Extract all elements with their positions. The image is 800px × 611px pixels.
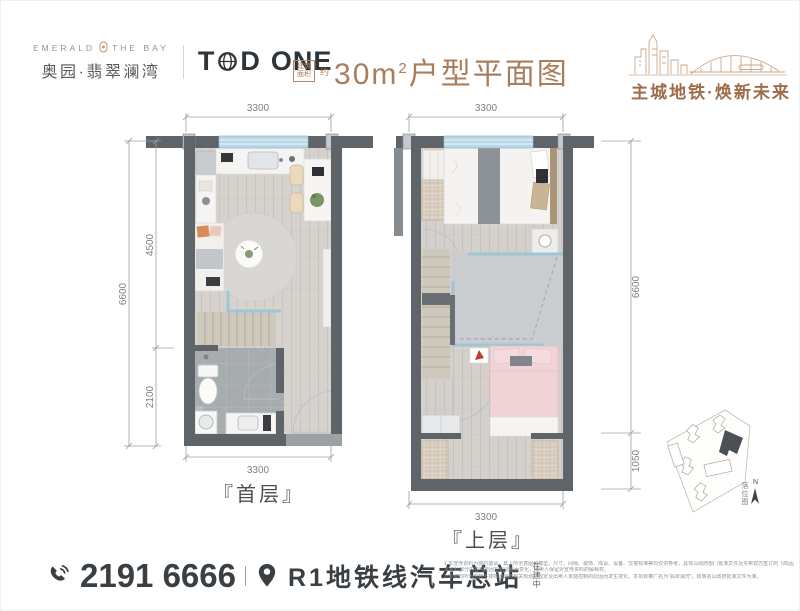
disclaimer-line: 2.本资料所示内容不排除因政府相关规划、规定及出卖人未能控制的原因而发生变化。本… — [444, 574, 794, 580]
todone-d: D — [240, 46, 261, 77]
stair-void — [451, 253, 563, 345]
title-area-sup: 2 — [398, 60, 408, 77]
first-floor-plan: 3300 6600 4500 2100 3300 — [116, 99, 381, 511]
logo-text-thebay: THE BAY — [112, 43, 169, 53]
title-box-line2: 面积 — [297, 71, 311, 79]
floorplan-poster: EMERALD THE BAY 奥园·翡翠澜湾 T D ONE 建筑 面积 约 … — [0, 0, 800, 611]
site-map: N — [653, 404, 778, 529]
dim-bottom: 3300 — [475, 512, 498, 523]
dim-total: 6600 — [631, 275, 642, 298]
dim-total: 6600 — [118, 282, 129, 305]
window — [219, 136, 308, 148]
window — [444, 136, 533, 148]
logo-divider — [183, 45, 184, 79]
logo-text-cn: 奥园·翡翠澜湾 — [33, 58, 169, 82]
first-floor-label: 『首层』 — [189, 478, 329, 507]
emerald-logo-en: EMERALD THE BAY — [33, 41, 169, 55]
title-approx: 约 — [320, 65, 329, 78]
site-map-label: 落位图 — [739, 482, 749, 506]
dim-top: 3300 — [475, 103, 498, 114]
dim-lower: 1050 — [631, 449, 642, 472]
title-box-line1: 建筑 — [297, 63, 311, 71]
title-area-number: 30m — [334, 58, 398, 91]
dim-top: 3300 — [247, 103, 270, 114]
north-arrow-icon — [751, 488, 759, 504]
phone-number: 2191 6666 — [80, 557, 236, 595]
dim-upper: 4500 — [145, 233, 156, 256]
dim-lower: 2100 — [145, 385, 156, 408]
phone-icon — [45, 563, 71, 589]
title-suffix: 户型平面图 — [409, 58, 569, 91]
emerald-logo: EMERALD THE BAY 奥园·翡翠澜湾 — [33, 41, 169, 82]
wardrobe — [422, 180, 446, 220]
disclaimer: 1.本宣传资料为要约邀请，其上所示意图和模型、尺寸、间隔、装饰、陈设、设备、交楼… — [444, 561, 794, 580]
location-pin-icon — [255, 562, 279, 590]
upper-floor-plan: 3300 6600 1050 3300 — [386, 99, 651, 554]
footer-divider — [245, 566, 246, 586]
logo-ornament-icon — [99, 41, 108, 55]
globe-icon — [217, 51, 238, 72]
dim-bottom: 3300 — [247, 465, 270, 476]
page-title: 建筑 面积 约 30m2户型平面图 — [293, 49, 569, 93]
north-label: N — [753, 479, 758, 486]
upper-floor-label: 『上层』 — [418, 524, 558, 553]
todone-t: T — [198, 46, 216, 77]
header-logos: EMERALD THE BAY 奥园·翡翠澜湾 T D ONE — [33, 41, 332, 82]
title-main: 30m2户型平面图 — [334, 49, 569, 93]
skyline-illustration — [627, 27, 791, 77]
title-area-box: 建筑 面积 — [293, 60, 315, 82]
logo-text-emerald: EMERALD — [33, 43, 95, 53]
